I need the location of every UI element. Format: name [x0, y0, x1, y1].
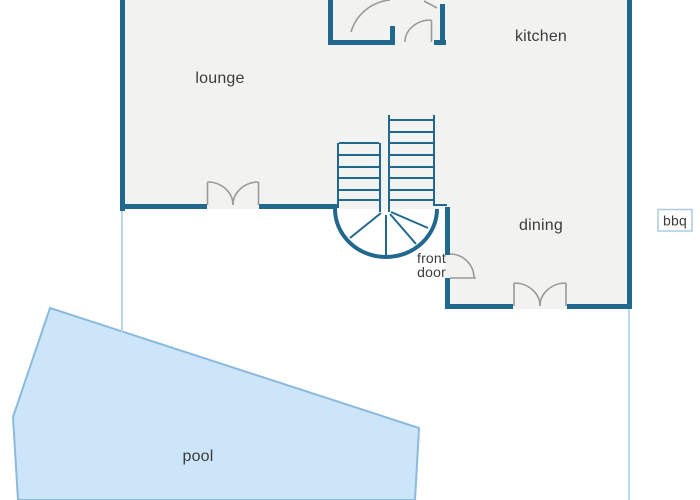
wall-entry-upper	[445, 207, 450, 255]
wall-room-bottom	[328, 40, 395, 45]
wall-lounge-bottom-left	[120, 204, 207, 209]
lounge-label: lounge	[195, 70, 244, 87]
wall-room-left	[328, 0, 333, 45]
kitchen-label: kitchen	[515, 28, 567, 45]
dining-label: dining	[519, 217, 563, 234]
wall-room-right	[440, 4, 445, 45]
bbq-label: bbq	[663, 213, 687, 229]
floor-plan-canvas: lounge kitchen dining front door pool bb…	[0, 0, 700, 500]
wall-lounge-bottom-right	[259, 204, 337, 209]
wall-left	[120, 0, 125, 211]
floor-plan: lounge kitchen dining front door pool bb…	[0, 0, 700, 500]
wall-dining-bottom-left	[445, 304, 513, 309]
pool-shape	[13, 308, 419, 500]
wall-right	[627, 0, 632, 309]
wall-room-door-jamb	[390, 26, 395, 45]
wall-dining-bottom-right	[567, 304, 632, 309]
front-door-label-line2: door	[417, 264, 446, 280]
pool-label: pool	[182, 448, 213, 465]
